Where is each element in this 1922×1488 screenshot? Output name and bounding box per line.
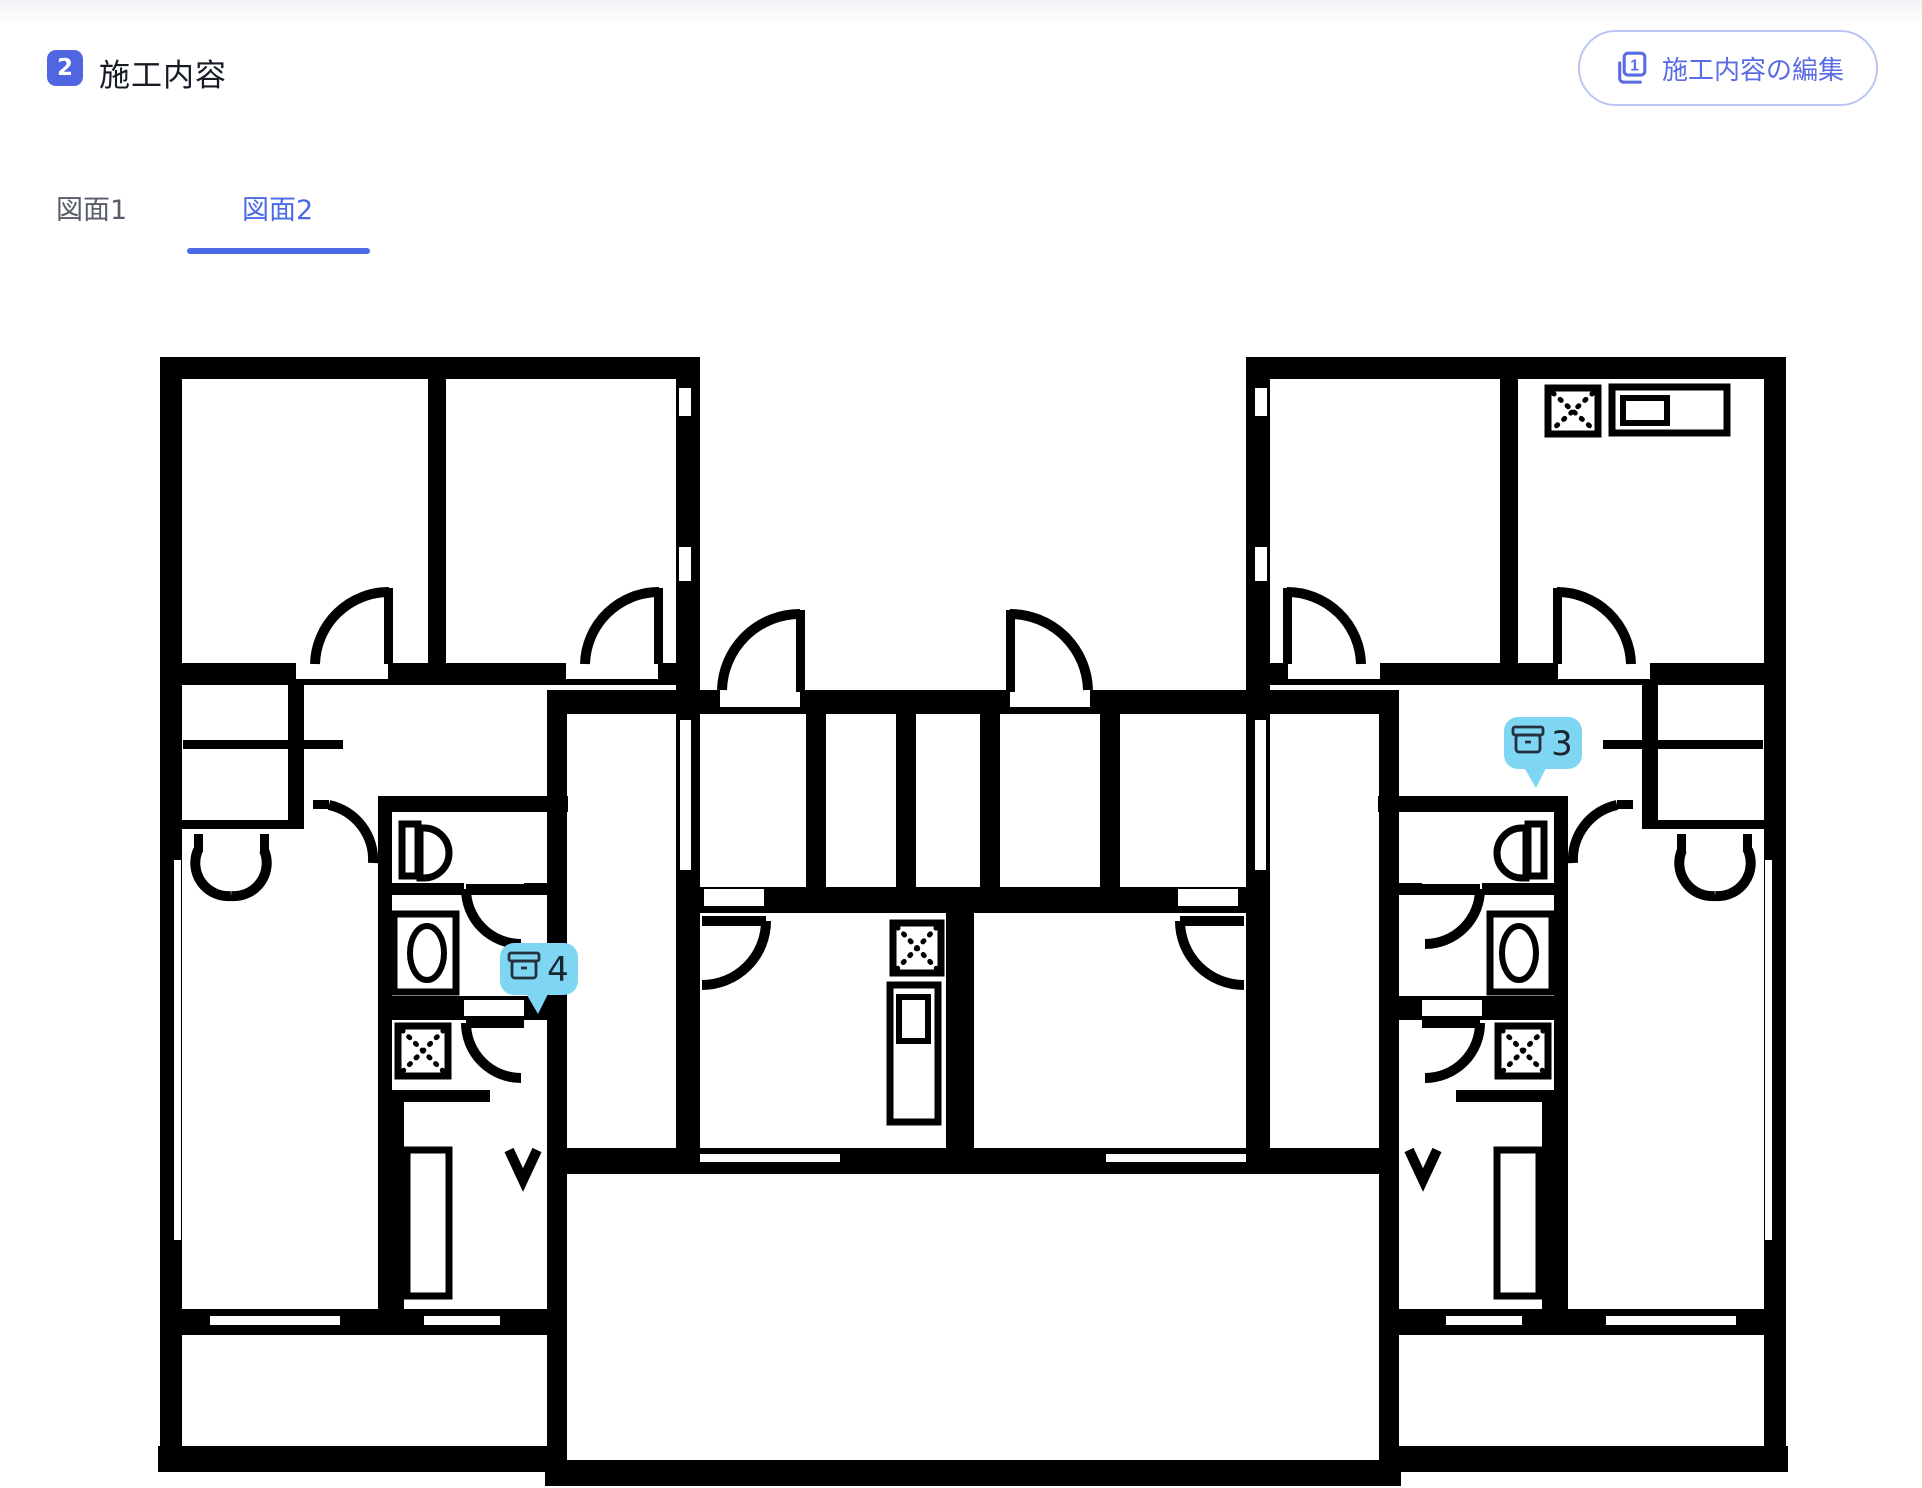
toilet-bowl-symbol (420, 828, 449, 878)
floor-plan-unit (158, 357, 700, 1472)
marker-count: 3 (1551, 724, 1573, 764)
floor-plan-drawing: 4 3 (0, 0, 1922, 1488)
floor-plan-center (545, 610, 1401, 1486)
marker-3[interactable]: 3 (1504, 717, 1582, 788)
toilet-tank-symbol (402, 824, 418, 876)
marker-count: 4 (547, 950, 569, 990)
cabinet-symbol (407, 1150, 449, 1296)
kitchen-symbols (1548, 387, 1727, 434)
